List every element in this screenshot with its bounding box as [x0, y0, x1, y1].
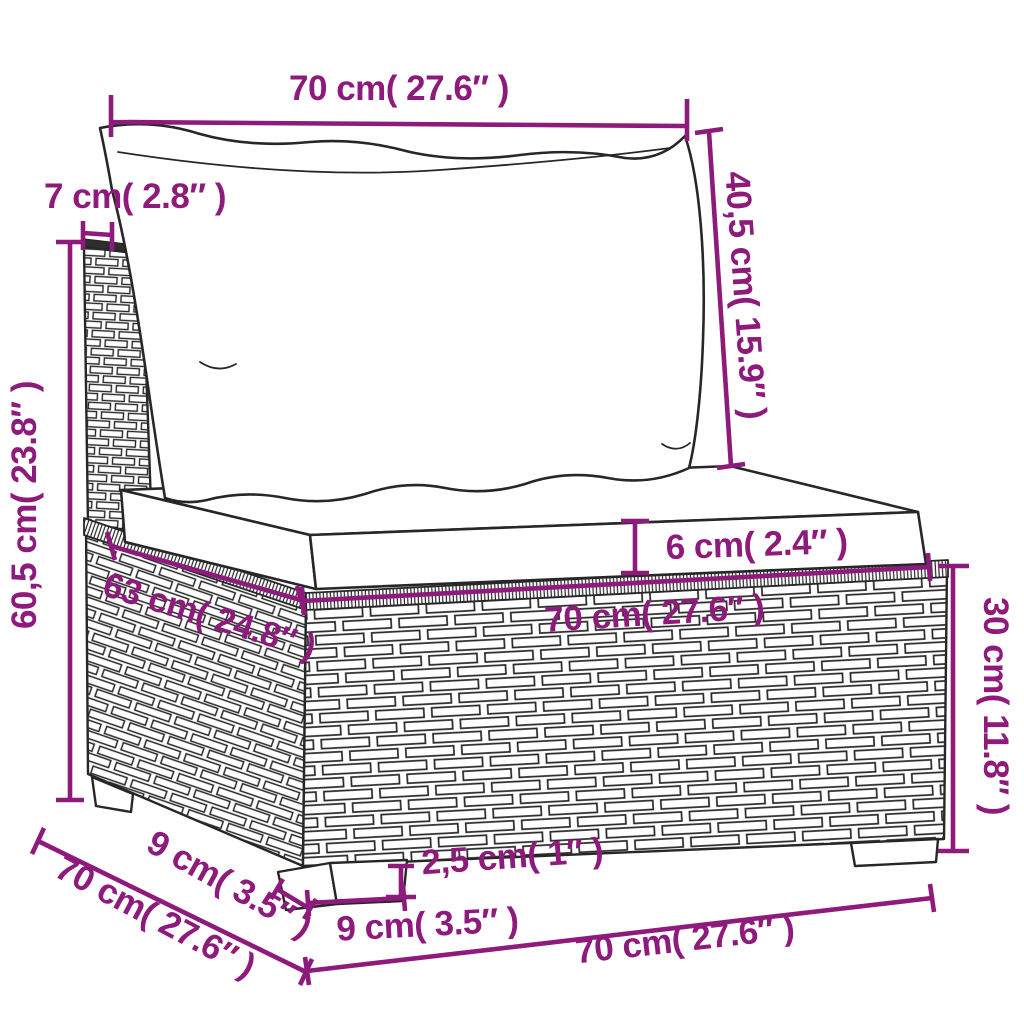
dim-label-seat-thickness: 6 cm( 2.4″ )	[665, 522, 848, 567]
dim-total-height: 60,5 cm( 23.8″ )	[5, 242, 84, 800]
dim-label-leg-width: 9 cm( 3.5″ )	[336, 900, 520, 948]
front-right-leg	[851, 839, 938, 866]
sofa-line-art	[83, 124, 948, 910]
dim-label-base-width: 70 cm( 27.6″ )	[573, 908, 796, 972]
dim-base-height: 30 cm( 11.8″ )	[938, 566, 1015, 851]
dim-label-back-thickness: 7 cm( 2.8″ )	[44, 177, 226, 216]
dimension-diagram: 70 cm( 27.6″ ) 40,5 cm( 15.9″ ) 7 cm( 2.…	[0, 0, 1024, 1024]
dim-cushion-width: 70 cm( 27.6″ )	[111, 69, 687, 141]
dim-total-height-line	[56, 242, 84, 800]
dim-back-cushion-height: 40,5 cm( 15.9″ )	[695, 129, 774, 468]
sofa-dimension-svg: 70 cm( 27.6″ ) 40,5 cm( 15.9″ ) 7 cm( 2.…	[0, 0, 1024, 1024]
dim-label-total-height: 60,5 cm( 23.8″ )	[5, 381, 44, 629]
dim-label-cushion-width: 70 cm( 27.6″ )	[289, 69, 509, 108]
dim-label-base-height: 30 cm( 11.8″ )	[976, 597, 1015, 815]
